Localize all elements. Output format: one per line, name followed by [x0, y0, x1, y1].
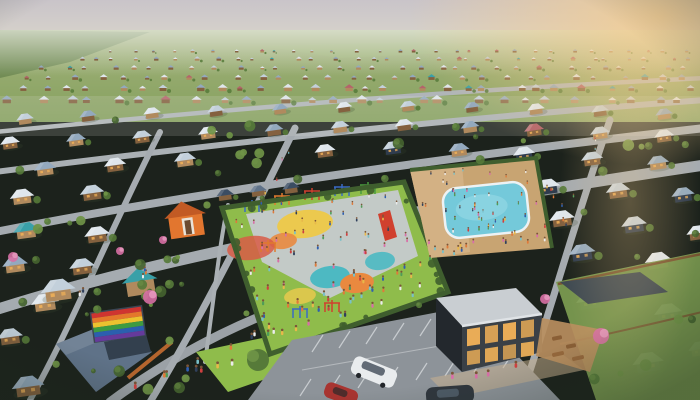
- vignette: [0, 0, 700, 400]
- scene-canvas: [0, 0, 700, 400]
- aerial-neighborhood-photo: [0, 0, 700, 400]
